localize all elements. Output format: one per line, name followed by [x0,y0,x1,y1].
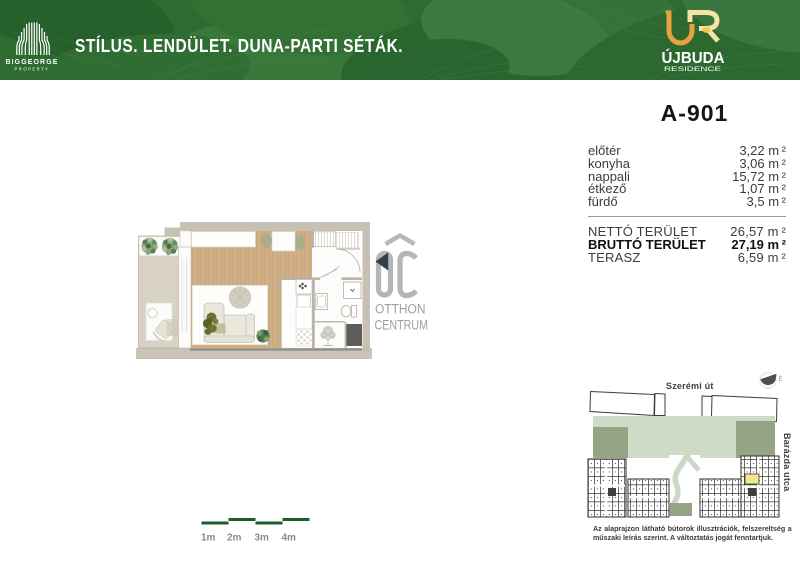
svg-text:2m: 2m [227,533,242,544]
svg-text:1m: 1m [201,533,216,544]
svg-text:RESIDENCE: RESIDENCE [664,66,721,73]
svg-text:É: É [779,376,783,383]
svg-text:PROPERTY: PROPERTY [15,67,50,72]
svg-text:Szerémi út: Szerémi út [666,381,714,391]
svg-text:4m: 4m [282,533,297,544]
svg-text:3m: 3m [255,533,270,544]
svg-text:ÚJBUDA: ÚJBUDA [662,48,725,67]
svg-text:Barázda utca: Barázda utca [782,433,792,492]
svg-text:OTTHON: OTTHON [375,302,426,317]
svg-text:CENTRUM: CENTRUM [375,318,429,333]
svg-text:BIGGEORGE: BIGGEORGE [5,59,58,66]
